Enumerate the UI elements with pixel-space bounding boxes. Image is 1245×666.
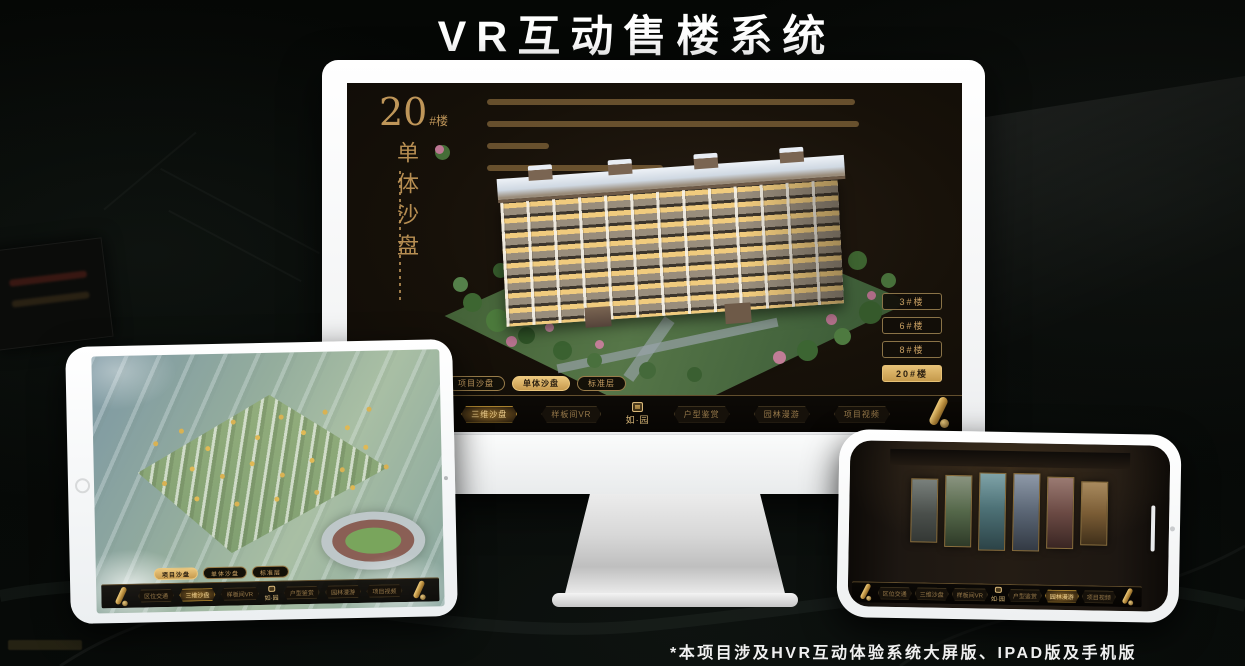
- interior-roof-beam: [890, 449, 1130, 469]
- nav-item-garden-roam[interactable]: 园林漫游: [325, 585, 361, 599]
- model-building-facade: [500, 177, 844, 326]
- scene-panel[interactable]: [978, 472, 1006, 550]
- text-line: [487, 99, 855, 105]
- tab-project-sandbox[interactable]: 项目沙盘: [447, 376, 505, 391]
- footnote: *本项目涉及HVR互动体验系统大屏版、IPAD版及手机版: [670, 639, 1137, 663]
- scroll-menu-icon[interactable]: [857, 584, 874, 601]
- nav-item-3d-sandbox[interactable]: 三维沙盘: [179, 588, 215, 602]
- phone-navbar: 区位交通 三维沙盘 样板间VR 如·园 户型鉴赏 园林漫游 项目视频: [852, 581, 1142, 607]
- nav-item-garden-roam[interactable]: 园林漫游: [754, 406, 810, 423]
- background-logo-mark: [8, 640, 82, 650]
- roof-dormer: [693, 153, 718, 170]
- tablet-home-button[interactable]: [75, 478, 90, 493]
- nav-item-floorplans[interactable]: 户型鉴赏: [1008, 588, 1042, 602]
- building-subtitle: 单体沙盘: [389, 141, 421, 265]
- brand-logo[interactable]: 如·园: [626, 402, 650, 426]
- scene-panel-row: [910, 471, 1108, 552]
- building-number-badges[interactable]: [153, 441, 158, 446]
- floor-button-6[interactable]: 6#楼: [882, 317, 942, 334]
- scroll-menu-icon[interactable]: [409, 581, 428, 600]
- floor-button-3[interactable]: 3#楼: [882, 293, 942, 310]
- phone-screen: 区位交通 三维沙盘 样板间VR 如·园 户型鉴赏 园林漫游 项目视频: [848, 440, 1171, 612]
- nav-item-project-video[interactable]: 项目视频: [834, 406, 890, 423]
- roof-dormer: [608, 159, 633, 176]
- nav-item-showroom-vr[interactable]: 样板间VR: [952, 588, 989, 602]
- nav-item-3d-sandbox[interactable]: 三维沙盘: [915, 587, 949, 601]
- tablet-screen: 项目沙盘 单体沙盘 标准层 区位交通 三维沙盘 样板间VR 如·园 户型鉴赏 园…: [91, 349, 444, 613]
- brand-seal-icon: [268, 585, 275, 591]
- tab-standard-floor[interactable]: 标准层: [577, 376, 626, 391]
- scroll-menu-icon[interactable]: [112, 587, 131, 606]
- tablet-camera-dot: [444, 476, 448, 480]
- phone-device: 区位交通 三维沙盘 样板间VR 如·园 户型鉴赏 园林漫游 项目视频: [836, 429, 1181, 623]
- tab-project-sandbox[interactable]: 项目沙盘: [154, 567, 198, 580]
- brand-logo-label: 如·园: [626, 413, 650, 426]
- monitor-stand: [560, 494, 790, 595]
- floor-selector: 3#楼 6#楼 8#楼 20#楼: [882, 293, 942, 382]
- floor-button-20[interactable]: 20#楼: [882, 365, 942, 382]
- scene-panel[interactable]: [944, 475, 972, 547]
- background-award-plaque: [0, 237, 114, 350]
- page: VR互动售楼系统 20#楼 单体沙盘: [0, 0, 1245, 666]
- scene-panel[interactable]: [1046, 477, 1074, 549]
- monitor-stand-foot: [552, 593, 798, 607]
- nav-item-showroom-vr[interactable]: 样板间VR: [221, 587, 260, 601]
- brand-seal-icon: [632, 402, 643, 412]
- scene-panel[interactable]: [1080, 481, 1108, 545]
- floor-button-8[interactable]: 8#楼: [882, 341, 942, 358]
- tab-standard-floor[interactable]: 标准层: [252, 565, 289, 578]
- nav-item-project-video[interactable]: 项目视频: [1082, 590, 1116, 604]
- background-aerial-band: [975, 71, 1245, 369]
- phone-camera-dot: [1170, 526, 1175, 531]
- building-number: 20: [379, 90, 427, 134]
- nav-item-floorplans[interactable]: 户型鉴赏: [284, 586, 320, 600]
- sandbox-mode-tabs: 项目沙盘 单体沙盘 标准层: [447, 376, 626, 391]
- roof-dormer: [779, 147, 804, 164]
- nav-item-3d-sandbox[interactable]: 三维沙盘: [461, 406, 517, 423]
- phone-home-indicator: [1151, 505, 1156, 551]
- text-line: [487, 121, 859, 127]
- nav-item-location-traffic[interactable]: 区位交通: [878, 586, 912, 600]
- tab-single-sandbox[interactable]: 单体沙盘: [512, 376, 570, 391]
- roof-dormer: [528, 164, 553, 181]
- brand-seal-icon: [994, 587, 1001, 593]
- nav-item-location-traffic[interactable]: 区位交通: [138, 589, 174, 603]
- brand-logo[interactable]: 如·园: [264, 585, 278, 601]
- scene-panel[interactable]: [910, 478, 938, 542]
- tablet-device: 项目沙盘 单体沙盘 标准层 区位交通 三维沙盘 样板间VR 如·园 户型鉴赏 园…: [65, 339, 458, 624]
- model-entrance: [584, 306, 611, 328]
- nav-item-floorplans[interactable]: 户型鉴赏: [674, 406, 730, 423]
- brand-logo-label: 如·园: [264, 592, 278, 601]
- nav-item-garden-roam[interactable]: 园林漫游: [1045, 589, 1079, 603]
- scene-panel[interactable]: [1012, 473, 1040, 551]
- brand-logo[interactable]: 如·园: [991, 587, 1005, 603]
- tab-single-sandbox[interactable]: 单体沙盘: [203, 566, 247, 579]
- scroll-menu-icon[interactable]: [1119, 589, 1136, 606]
- nav-item-showroom-vr[interactable]: 样板间VR: [541, 406, 601, 423]
- building-unit: #楼: [429, 114, 448, 128]
- brand-logo-label: 如·园: [991, 594, 1005, 603]
- model-flowers: [435, 145, 444, 154]
- nav-item-project-video[interactable]: 项目视频: [366, 584, 402, 598]
- scroll-menu-icon[interactable]: [924, 398, 954, 428]
- page-title: VR互动售楼系统: [0, 2, 1245, 64]
- subtitle-english-deco: [399, 171, 401, 301]
